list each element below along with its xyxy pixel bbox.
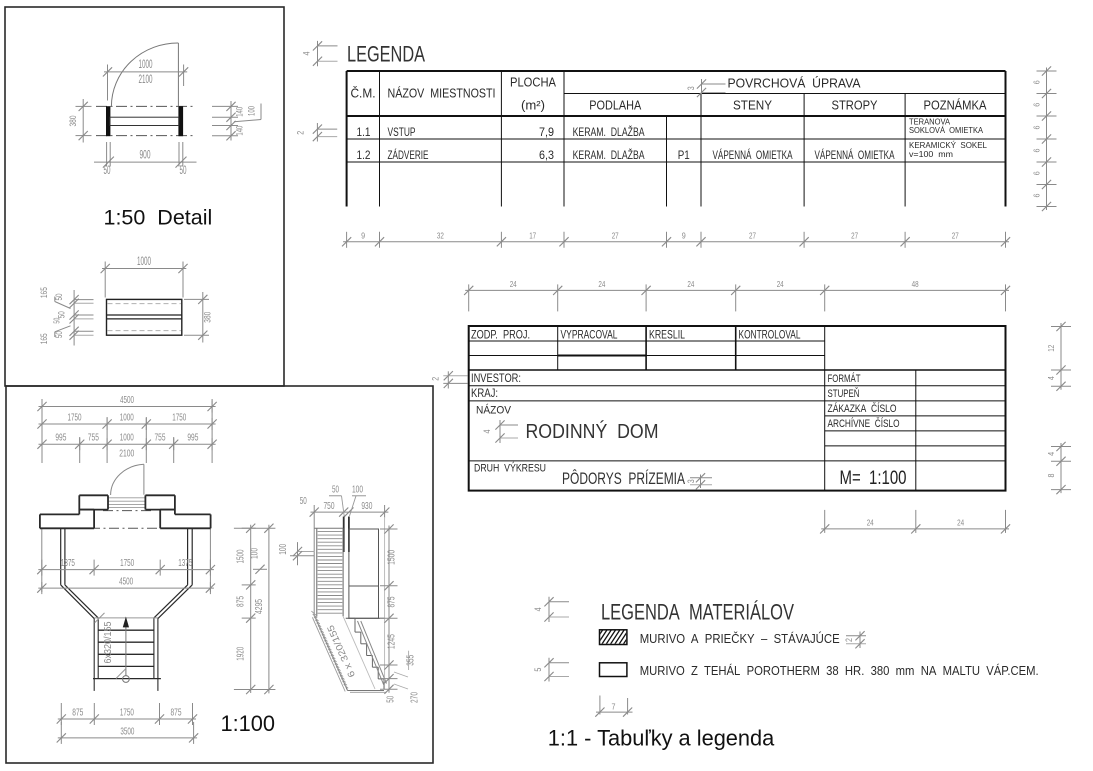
svg-text:1500: 1500	[235, 549, 247, 563]
svg-text:1000: 1000	[137, 254, 151, 268]
svg-text:2: 2	[844, 638, 854, 642]
svg-text:380: 380	[68, 116, 78, 127]
svg-text:380: 380	[203, 312, 213, 323]
svg-text:27: 27	[952, 230, 959, 240]
svg-text:50: 50	[54, 331, 64, 338]
svg-text:ZODP. PROJ.: ZODP. PROJ.	[471, 327, 530, 341]
svg-text:v=100 mm: v=100 mm	[909, 149, 953, 159]
svg-text:1500: 1500	[386, 550, 398, 565]
svg-text:750: 750	[324, 500, 335, 512]
svg-text:100: 100	[277, 544, 289, 555]
svg-text:27: 27	[851, 230, 858, 240]
svg-text:48: 48	[912, 279, 919, 289]
svg-text:50: 50	[57, 311, 67, 318]
svg-text:VSTUP: VSTUP	[388, 127, 416, 139]
svg-text:6: 6	[1032, 171, 1042, 175]
svg-text:930: 930	[361, 500, 372, 512]
svg-text:M= 1:100: M= 1:100	[840, 468, 907, 489]
svg-text:875: 875	[386, 596, 398, 607]
svg-text:7: 7	[612, 702, 616, 712]
svg-text:50: 50	[385, 696, 397, 703]
svg-text:Č.M.: Č.M.	[351, 85, 376, 100]
svg-text:1000: 1000	[120, 412, 134, 424]
svg-text:4: 4	[1046, 376, 1056, 380]
svg-text:PLOCHA: PLOCHA	[510, 76, 557, 90]
svg-text:875: 875	[171, 707, 182, 719]
svg-text:4500: 4500	[120, 394, 134, 406]
svg-text:100: 100	[249, 548, 261, 559]
svg-text:2100: 2100	[119, 448, 134, 460]
svg-text:4: 4	[1046, 452, 1056, 456]
svg-text:17: 17	[529, 230, 536, 240]
svg-text:SOKLOVÁ OMIETKA: SOKLOVÁ OMIETKA	[909, 125, 983, 135]
svg-text:KERAM. DLAŽBA: KERAM. DLAŽBA	[573, 149, 645, 162]
svg-text:355: 355	[405, 655, 417, 666]
svg-text:1750: 1750	[172, 412, 186, 424]
svg-text:PÔDORYS PRÍZEMIA: PÔDORYS PRÍZEMIA	[562, 469, 685, 488]
svg-text:27: 27	[612, 230, 619, 240]
svg-text:STENY: STENY	[733, 99, 773, 113]
svg-text:DRUH VÝKRESU: DRUH VÝKRESU	[474, 462, 546, 475]
svg-text:875: 875	[235, 596, 247, 607]
svg-text:6: 6	[1032, 80, 1042, 84]
svg-text:4295: 4295	[253, 599, 265, 614]
svg-text:STUPEŇ: STUPEŇ	[828, 387, 860, 400]
svg-text:INVESTOR:: INVESTOR:	[471, 371, 521, 385]
svg-text:STROPY: STROPY	[832, 99, 879, 113]
svg-text:995: 995	[55, 432, 66, 444]
svg-text:RODINNÝ DOM: RODINNÝ DOM	[526, 420, 659, 443]
svg-text:NÁZOV MIESTNOSTI: NÁZOV MIESTNOSTI	[388, 85, 496, 100]
svg-text:1000: 1000	[120, 432, 134, 444]
svg-text:ZÁKAZKA ČÍSLO: ZÁKAZKA ČÍSLO	[828, 402, 897, 415]
svg-text:2: 2	[430, 377, 440, 381]
svg-text:FORMÁT: FORMÁT	[828, 372, 861, 385]
svg-text:KONTROLOVAL: KONTROLOVAL	[739, 327, 801, 341]
svg-text:6x320/155: 6x320/155	[102, 621, 114, 663]
svg-text:24: 24	[777, 279, 784, 289]
svg-text:1000: 1000	[139, 57, 153, 71]
svg-text:ARCHÍVNE ČÍSLO: ARCHÍVNE ČÍSLO	[828, 417, 900, 430]
svg-text:165: 165	[39, 287, 49, 298]
svg-text:8: 8	[1046, 473, 1056, 477]
svg-text:32: 32	[437, 230, 444, 240]
svg-text:6: 6	[1032, 125, 1042, 129]
svg-text:900: 900	[140, 147, 151, 161]
svg-text:1920: 1920	[235, 647, 247, 661]
svg-text:1750: 1750	[120, 557, 134, 569]
svg-text:755: 755	[155, 432, 166, 444]
svg-text:140: 140	[235, 107, 245, 117]
svg-text:VÁPENNÁ OMIETKA: VÁPENNÁ OMIETKA	[815, 149, 895, 162]
svg-text:24: 24	[510, 279, 517, 289]
svg-text:50: 50	[104, 163, 111, 177]
svg-text:LEGENDA MATERIÁLOV: LEGENDA MATERIÁLOV	[601, 600, 794, 625]
svg-text:100: 100	[352, 484, 363, 496]
svg-text:KRESLIL: KRESLIL	[649, 327, 685, 341]
svg-text:24: 24	[687, 279, 694, 289]
svg-text:3: 3	[686, 479, 696, 483]
svg-text:50: 50	[180, 163, 187, 177]
svg-text:9: 9	[361, 230, 365, 240]
svg-text:9: 9	[682, 230, 686, 240]
svg-text:755: 755	[88, 432, 99, 444]
svg-text:6: 6	[1032, 193, 1042, 197]
svg-text:4500: 4500	[119, 576, 133, 588]
svg-text:1:50 Detail: 1:50 Detail	[104, 206, 213, 230]
svg-text:3: 3	[686, 86, 696, 90]
svg-text:1750: 1750	[120, 707, 134, 719]
svg-text:5: 5	[533, 668, 543, 672]
svg-text:1:1 - Tabuľky a legenda: 1:1 - Tabuľky a legenda	[548, 726, 775, 751]
svg-text:POZNÁMKA: POZNÁMKA	[924, 98, 988, 113]
svg-text:165: 165	[39, 333, 49, 344]
svg-text:1375: 1375	[61, 557, 75, 569]
svg-text:1375: 1375	[178, 557, 192, 569]
svg-text:MURIVO Z TEHÁL POROTHERM 3: MURIVO Z TEHÁL POROTHERM 38 HR. 380 mm N…	[640, 663, 1039, 678]
svg-text:100: 100	[247, 106, 257, 116]
svg-text:LEGENDA: LEGENDA	[347, 42, 425, 67]
svg-text:3500: 3500	[120, 725, 134, 737]
svg-text:140: 140	[235, 126, 245, 136]
svg-text:NÁZOV: NÁZOV	[476, 404, 512, 417]
svg-text:6,3: 6,3	[539, 150, 554, 162]
svg-text:1750: 1750	[68, 412, 82, 424]
svg-text:4: 4	[533, 607, 543, 611]
svg-text:995: 995	[187, 432, 198, 444]
svg-text:50: 50	[53, 317, 62, 323]
svg-text:875: 875	[72, 707, 83, 719]
svg-text:ZÁDVERIE: ZÁDVERIE	[388, 149, 429, 162]
svg-text:1.2: 1.2	[357, 150, 371, 162]
svg-text:50: 50	[300, 495, 307, 507]
svg-text:POVRCHOVÁ ÚPRAVA: POVRCHOVÁ ÚPRAVA	[728, 76, 862, 91]
svg-text:6: 6	[1032, 103, 1042, 107]
svg-text:7,9: 7,9	[539, 127, 554, 139]
svg-text:MURIVO A PRIEČKY – STÁVAJÚ: MURIVO A PRIEČKY – STÁVAJÚCE	[640, 631, 840, 646]
svg-text:2100: 2100	[139, 72, 153, 86]
svg-text:50: 50	[54, 294, 64, 301]
svg-text:KRAJ:: KRAJ:	[471, 386, 498, 400]
svg-text:(m²): (m²)	[521, 99, 545, 113]
svg-text:6: 6	[1032, 148, 1042, 152]
svg-text:4: 4	[302, 52, 312, 56]
svg-text:1.1: 1.1	[357, 127, 371, 139]
svg-text:1:100: 1:100	[221, 711, 276, 736]
svg-text:24: 24	[598, 279, 605, 289]
svg-text:2: 2	[296, 131, 306, 135]
svg-text:P1: P1	[678, 150, 690, 162]
svg-text:27: 27	[749, 230, 756, 240]
svg-text:VÁPENNÁ OMIETKA: VÁPENNÁ OMIETKA	[713, 149, 793, 162]
svg-text:24: 24	[957, 517, 964, 527]
svg-text:4: 4	[482, 430, 492, 434]
svg-text:KERAM. DLAŽBA: KERAM. DLAŽBA	[573, 126, 645, 139]
svg-text:1245: 1245	[386, 634, 398, 649]
svg-text:12: 12	[1046, 345, 1056, 352]
svg-text:50: 50	[332, 484, 339, 496]
svg-text:PODLAHA: PODLAHA	[589, 99, 642, 113]
svg-text:VYPRACOVAL: VYPRACOVAL	[561, 327, 618, 341]
svg-text:270: 270	[409, 692, 421, 703]
svg-text:24: 24	[867, 517, 874, 527]
